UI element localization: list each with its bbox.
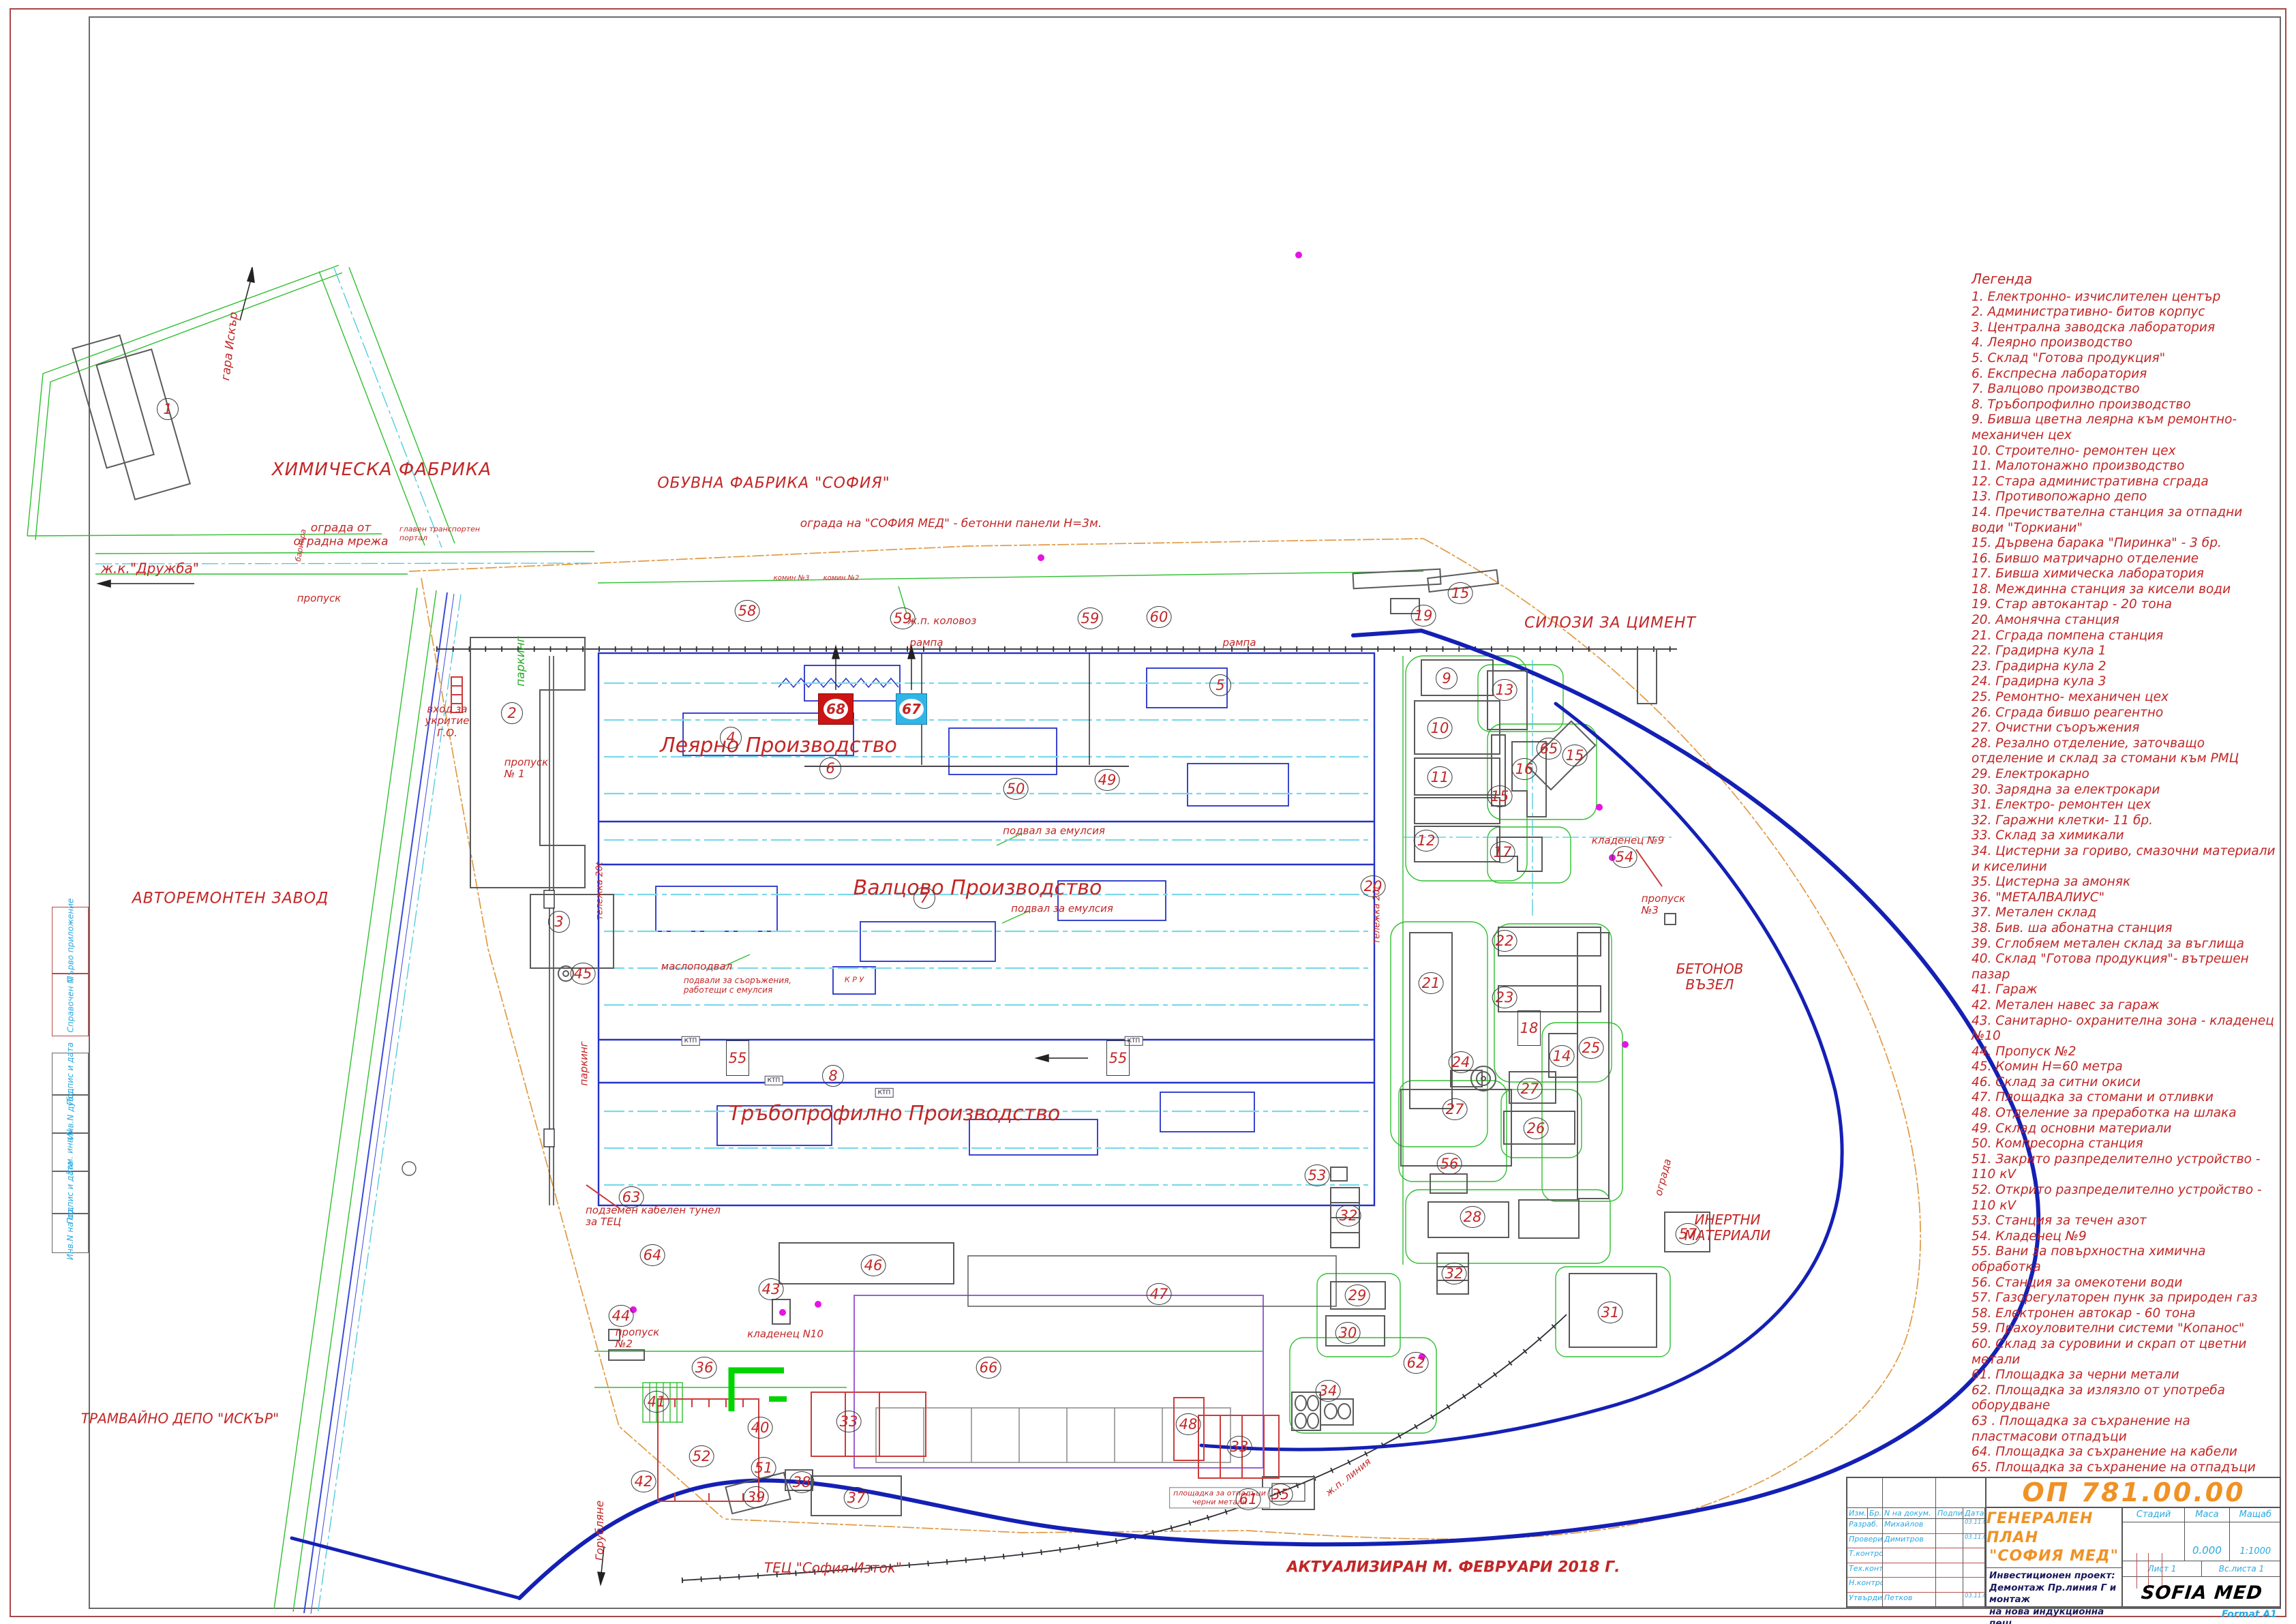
legend-item: 63 . Площадка за съхранение на пластмасо… bbox=[1972, 1414, 2276, 1445]
plan-marker-50: 50 bbox=[1003, 778, 1029, 800]
legend-item: 65. Площадка за съхранение на отпадъци bbox=[1972, 1460, 2276, 1476]
stamp-header-cell: Подпис bbox=[1936, 1508, 1963, 1519]
plan-marker-27: 27 bbox=[1517, 1078, 1543, 1100]
plan-marker-36: 36 bbox=[692, 1357, 717, 1379]
plan-label: ж.п. линия bbox=[1324, 1456, 1374, 1499]
legend-item: 42. Метален навес за гараж bbox=[1972, 998, 2276, 1014]
plan-label: паркинг bbox=[578, 1041, 590, 1085]
legend-item: 16. Бившо матричарно отделение bbox=[1972, 552, 2276, 567]
plan-label: подземен кабелен тунел за ТЕЦ bbox=[586, 1205, 721, 1229]
stamp-cell: Т.контрол bbox=[1847, 1548, 1883, 1563]
legend-item: 7. Валцово производство bbox=[1972, 382, 2276, 397]
legend-item: 60. Склад за суровини и скрап от цветни … bbox=[1972, 1337, 2276, 1368]
plan-marker-62: 62 bbox=[1404, 1352, 1429, 1374]
plan-label: КТП bbox=[875, 1088, 894, 1098]
plan-marker-28: 28 bbox=[1460, 1206, 1485, 1228]
legend-items: 1. Електронно- изчислителен център2. Адм… bbox=[1972, 290, 2276, 1599]
legend-item: 15. Дървена барака "Пиринка" - 3 бр. bbox=[1972, 536, 2276, 552]
legend-item: 57. Газорегулаторен пунк за природен газ bbox=[1972, 1291, 2276, 1306]
plan-marker-10: 10 bbox=[1428, 717, 1453, 739]
plan-marker-13: 13 bbox=[1492, 679, 1517, 701]
plan-marker-35: 35 bbox=[1268, 1484, 1293, 1505]
plan-marker-46: 46 bbox=[861, 1254, 886, 1276]
legend-item: 28. Резално отделение, заточващо отделен… bbox=[1972, 736, 2276, 767]
plan-marker-23: 23 bbox=[1492, 987, 1517, 1008]
stamp-header-cell: Дата bbox=[1963, 1508, 1985, 1519]
legend-item: 27. Очистни съоръжения bbox=[1972, 721, 2276, 736]
plan-marker-59: 59 bbox=[890, 607, 916, 629]
plan-marker-38: 38 bbox=[789, 1471, 815, 1493]
plan-label: ТРАМВАЙНО ДЕПО "ИСКЪР" bbox=[81, 1411, 279, 1427]
legend-item: 1. Електронно- изчислителен център bbox=[1972, 290, 2276, 305]
plan-label: подвал за емулсия bbox=[1011, 903, 1113, 914]
legend-item: 2. Административно- битов корпус bbox=[1972, 305, 2276, 320]
plan-marker-60: 60 bbox=[1147, 606, 1172, 628]
plan-marker-19: 19 bbox=[1411, 605, 1436, 627]
legend-item: 64. Площадка за съхранение на кабели bbox=[1972, 1445, 2276, 1460]
plan-marker-8: 8 bbox=[822, 1065, 844, 1087]
plan-marker-16: 16 bbox=[1512, 758, 1537, 780]
legend-item: 46. Склад за ситни окиси bbox=[1972, 1075, 2276, 1091]
plan-marker-17: 17 bbox=[1490, 841, 1515, 863]
plan-label: вход за укритие Г.О. bbox=[425, 704, 470, 739]
plan-label: Леярно Производство bbox=[660, 734, 897, 758]
plan-marker-68: 68 bbox=[818, 693, 854, 725]
plan-label: Тръбопрофилно Производство bbox=[729, 1102, 1060, 1126]
plan-marker-27: 27 bbox=[1442, 1098, 1468, 1120]
plan-label: пропуск №2 bbox=[616, 1327, 660, 1351]
legend-item: 48. Отделение за преработка на шлака bbox=[1972, 1106, 2276, 1122]
plan-marker-47: 47 bbox=[1147, 1283, 1172, 1305]
format-label: Format A1 bbox=[2188, 1609, 2277, 1620]
plan-label: кладенец №9 bbox=[1592, 834, 1665, 846]
legend-item: 13. Противопожарно депо bbox=[1972, 490, 2276, 505]
plan-marker-66: 66 bbox=[976, 1357, 1001, 1379]
legend-item: 40. Склад "Готова продукция"- вътрешен п… bbox=[1972, 952, 2276, 982]
legend-item: 51. Закрито разпределително устройство -… bbox=[1972, 1152, 2276, 1183]
plan-marker-26: 26 bbox=[1524, 1117, 1549, 1139]
legend-item: 54. Кладенец №9 bbox=[1972, 1229, 2276, 1245]
plan-marker-37: 37 bbox=[844, 1487, 869, 1509]
plan-marker-3: 3 bbox=[548, 911, 570, 933]
sheets-total: Вс.листа 1 bbox=[2202, 1561, 2281, 1576]
frame-sidebar-label: Първо приложение bbox=[52, 907, 89, 974]
plan-label: комин №2 bbox=[824, 574, 860, 582]
legend-item: 37. Метален склад bbox=[1972, 905, 2276, 921]
stamp-cell: Петков bbox=[1883, 1593, 1936, 1608]
plan-marker-7: 7 bbox=[913, 887, 935, 909]
project-description: Инвестиционен проект: Демонтаж Пр.линия … bbox=[1985, 1568, 2121, 1608]
plan-marker-2: 2 bbox=[501, 702, 523, 724]
stamp-header-cell: N на докум. bbox=[1883, 1508, 1936, 1519]
plan-marker-44: 44 bbox=[609, 1305, 634, 1327]
stamp-cell: Проверил bbox=[1847, 1534, 1883, 1549]
plan-marker-34: 34 bbox=[1316, 1380, 1341, 1402]
stamp-cell bbox=[1936, 1563, 1963, 1578]
project-line2: Демонтаж Пр.линия Г и монтаж bbox=[1989, 1582, 2119, 1606]
plan-label: рампа bbox=[909, 637, 943, 648]
legend-item: 6. Експресна лаборатория bbox=[1972, 367, 2276, 382]
legend-item: 34. Цистерни за гориво, смазочни материа… bbox=[1972, 844, 2276, 875]
plan-label: КТП bbox=[682, 1036, 700, 1046]
drawing-title: ГЕНЕРАЛЕН ПЛАН "СОФИЯ МЕД" bbox=[1985, 1508, 2121, 1568]
legend-item: 62. Площадка за излязло от употреба обор… bbox=[1972, 1383, 2276, 1414]
stamp-cell: 03.11.04 bbox=[1963, 1519, 1985, 1534]
plan-label: БЕТОНОВ ВЪЗЕЛ bbox=[1676, 961, 1744, 993]
legend-item: 12. Стара административна сграда bbox=[1972, 475, 2276, 490]
legend-item: 53. Станция за течен азот bbox=[1972, 1214, 2276, 1229]
legend-item: 45. Комин Н=60 метра bbox=[1972, 1059, 2276, 1075]
legend-item: 19. Стар автокантар - 20 тона bbox=[1972, 597, 2276, 613]
stamp-cell bbox=[1883, 1548, 1936, 1563]
plan-label: ТЕЦ "София-Изток" bbox=[764, 1561, 902, 1576]
stadia-label: Стадий bbox=[2123, 1508, 2185, 1522]
drawing-sheet: 1234567891011121314151515161718192021222… bbox=[0, 0, 2296, 1624]
legend-item: 36. "МЕТАЛВАЛИУС" bbox=[1972, 890, 2276, 906]
title-block: ОП 781.00.00 Изм.Бр.N на докум.ПодписДат… bbox=[1846, 1477, 2281, 1608]
legend-item: 43. Санитарно- охранителна зона - кладен… bbox=[1972, 1014, 2276, 1044]
stamp-cell bbox=[1963, 1563, 1985, 1578]
plan-label: подвали за съоръжения, работещи с емулси… bbox=[684, 976, 791, 995]
legend-item: 25. Ремонтно- механичен цех bbox=[1972, 690, 2276, 706]
plan-marker-32: 32 bbox=[1442, 1263, 1467, 1284]
plan-marker-43: 43 bbox=[759, 1278, 784, 1300]
legend-item: 22. Градирна кула 1 bbox=[1972, 644, 2276, 659]
stamp-cell: Димитров bbox=[1883, 1534, 1936, 1549]
plan-marker-29: 29 bbox=[1345, 1284, 1370, 1306]
plan-marker-30: 30 bbox=[1335, 1322, 1361, 1344]
stamp-cell bbox=[1936, 1548, 1963, 1563]
legend-item: 20. Амонячна станция bbox=[1972, 613, 2276, 629]
plan-marker-41: 41 bbox=[644, 1391, 669, 1413]
legend-item: 9. Бивша цветна леярна към ремонтно- мех… bbox=[1972, 412, 2276, 443]
plan-marker-42: 42 bbox=[631, 1471, 656, 1492]
plan-marker-15: 15 bbox=[1562, 745, 1588, 766]
plan-marker-45: 45 bbox=[571, 963, 596, 984]
plan-marker-63: 63 bbox=[619, 1186, 644, 1208]
stamp-cell: Разраб. bbox=[1847, 1519, 1883, 1534]
legend-item: 11. Малотонажно производство bbox=[1972, 459, 2276, 475]
plan-marker-4: 4 bbox=[720, 727, 742, 749]
plan-label: пропуск №3 bbox=[1642, 893, 1686, 917]
plan-label: маслоподвал bbox=[661, 961, 733, 972]
plan-marker-1: 1 bbox=[157, 398, 179, 420]
legend-item: 8. Тръбопрофилно производство bbox=[1972, 397, 2276, 413]
document-number: ОП 781.00.00 bbox=[1985, 1478, 2281, 1508]
plan-label: гара Искър bbox=[220, 312, 241, 382]
legend-item: 50. Компресорна станция bbox=[1972, 1137, 2276, 1152]
plan-label: подвал за емулсия bbox=[1003, 825, 1105, 837]
stamp-cell bbox=[1936, 1534, 1963, 1549]
plan-marker-49: 49 bbox=[1095, 769, 1120, 791]
frame-sidebar-label: Инв.N на ор. bbox=[52, 1214, 89, 1253]
stamp-cell: Н.контрол bbox=[1847, 1578, 1883, 1593]
plan-label: ж.п. коловоз bbox=[908, 615, 977, 627]
sheet-number: Лист 1 bbox=[2123, 1561, 2202, 1576]
plan-label: пропуск № 1 bbox=[504, 757, 549, 781]
plan-marker-65: 65 bbox=[1537, 738, 1562, 760]
legend-item: 23. Градирна кула 2 bbox=[1972, 659, 2276, 675]
plan-label: главен транспортен портал bbox=[399, 525, 480, 542]
plan-marker-61: 61 bbox=[1236, 1488, 1261, 1510]
project-line3: на нова индукционна пещ bbox=[1989, 1606, 2119, 1624]
massa-value: 0.000 bbox=[2185, 1522, 2229, 1561]
legend-item: 32. Гаражни клетки- 11 бр. bbox=[1972, 813, 2276, 829]
plan-marker-67: 67 bbox=[896, 693, 927, 725]
massa-label: Маса bbox=[2185, 1508, 2229, 1522]
plan-label: паркинг bbox=[515, 636, 528, 687]
plan-label: АВТОРЕМОНТЕН ЗАВОД bbox=[132, 890, 329, 907]
stamp-cell bbox=[1936, 1519, 1963, 1534]
plan-marker-21: 21 bbox=[1419, 972, 1444, 994]
stamp-cell: Тех.контрол bbox=[1847, 1563, 1883, 1578]
project-line1: Инвестиционен проект: bbox=[1989, 1570, 2119, 1582]
plan-marker-15: 15 bbox=[1487, 785, 1513, 807]
frame-sidebar-label: Справочен N bbox=[52, 974, 89, 1036]
plan-marker-54: 54 bbox=[1612, 846, 1637, 868]
plan-marker-59: 59 bbox=[1078, 607, 1103, 629]
plan-label: СИЛОЗИ ЗА ЦИМЕНТ bbox=[1524, 614, 1696, 631]
plan-label: КТП bbox=[765, 1076, 783, 1085]
frame-sidebar-label: Инв.N дубл. bbox=[52, 1095, 89, 1133]
plan-label: тележка 20t bbox=[596, 862, 606, 920]
plan-label: пропуск bbox=[297, 592, 342, 604]
plan-marker-39: 39 bbox=[744, 1486, 769, 1508]
marker-number: 67 bbox=[899, 699, 924, 719]
stamp-header-cell: Изм. bbox=[1847, 1508, 1868, 1519]
legend-item: 18. Междинна станция за кисели води bbox=[1972, 582, 2276, 598]
stamp-cell bbox=[1883, 1563, 1936, 1578]
plan-marker-25: 25 bbox=[1579, 1037, 1604, 1059]
frame-sidebar: Първо приложениеСправочен NПодпис и дата… bbox=[52, 0, 89, 1624]
legend-item: 52. Открито разпределително устройство -… bbox=[1972, 1183, 2276, 1214]
stamp-cell bbox=[1936, 1593, 1963, 1608]
plan-marker-31: 31 bbox=[1598, 1302, 1623, 1323]
plan-marker-56: 56 bbox=[1437, 1153, 1462, 1175]
plan-label: комин №3 bbox=[774, 574, 810, 582]
plan-marker-48: 48 bbox=[1176, 1413, 1201, 1435]
legend-item: 49. Склад основни материали bbox=[1972, 1122, 2276, 1137]
drawing-title-line1: ГЕНЕРАЛЕН ПЛАН bbox=[1987, 1509, 2121, 1547]
legend-item: 17. Бивша химическа лаборатория bbox=[1972, 567, 2276, 582]
stamp-cell bbox=[1963, 1548, 1985, 1563]
stamp-header-cell: Бр. bbox=[1868, 1508, 1883, 1519]
stamp-cell bbox=[1883, 1578, 1936, 1593]
plan-marker-14: 14 bbox=[1550, 1045, 1575, 1067]
plan-marker-64: 64 bbox=[640, 1244, 665, 1266]
legend-item: 3. Централна заводска лаборатория bbox=[1972, 320, 2276, 336]
plan-label: ограда от оградна мрежа bbox=[293, 522, 388, 548]
legend-title: Легенда bbox=[1972, 271, 2276, 287]
plan-marker-40: 40 bbox=[748, 1417, 773, 1439]
legend-item: 41. Гараж bbox=[1972, 982, 2276, 998]
plan-label: кладенец N10 bbox=[747, 1328, 824, 1340]
stamp-cell bbox=[1963, 1578, 1985, 1593]
legend-item: 29. Електрокарно bbox=[1972, 767, 2276, 783]
company-logo: SOFIA MED bbox=[2121, 1577, 2283, 1608]
legend-item: 35. Цистерна за амоняк bbox=[1972, 875, 2276, 890]
signature-table: Изм.Бр.N на докум.ПодписДатаРазраб.Михай… bbox=[1847, 1508, 1985, 1608]
plan-marker-20: 20 bbox=[1361, 875, 1386, 897]
legend-item: 39. Сглобяем метален склад за въглища bbox=[1972, 937, 2276, 952]
legend-item: 33. Склад за химикали bbox=[1972, 828, 2276, 844]
plan-label: рампа bbox=[1222, 637, 1256, 648]
stamp-cell: 03.11.04 bbox=[1963, 1534, 1985, 1549]
plan-marker-32: 32 bbox=[1336, 1205, 1361, 1227]
legend-item: 14. Пречиствателна станция за отпадни во… bbox=[1972, 505, 2276, 536]
plan-marker-33: 33 bbox=[1227, 1436, 1252, 1458]
legend-item: 10. Строително- ремонтен цех bbox=[1972, 444, 2276, 460]
plan-marker-9: 9 bbox=[1436, 667, 1457, 689]
mashtab-value: 1:1000 bbox=[2230, 1522, 2281, 1561]
plan-marker-55: 55 bbox=[1106, 1040, 1130, 1076]
legend-item: 44. Пропуск №2 bbox=[1972, 1044, 2276, 1060]
legend-item: 31. Електро- ремонтен цех bbox=[1972, 798, 2276, 813]
plan-marker-5: 5 bbox=[1209, 674, 1231, 696]
legend-item: 24. Градирна кула 3 bbox=[1972, 674, 2276, 690]
legend-panel: Легенда 1. Електронно- изчислителен цент… bbox=[1972, 271, 2276, 1599]
stamp-cell: Михайлов bbox=[1883, 1519, 1936, 1534]
legend-item: 55. Вани за повърхностна химична обработ… bbox=[1972, 1244, 2276, 1275]
legend-item: 26. Сграда бившо реагентно bbox=[1972, 706, 2276, 721]
stamp-cell bbox=[1936, 1578, 1963, 1593]
stamp-cell: 03.11.04 bbox=[1963, 1593, 1985, 1608]
plan-marker-18: 18 bbox=[1517, 1010, 1541, 1046]
legend-item: 56. Станция за омекотени води bbox=[1972, 1276, 2276, 1291]
plan-label: ж.к."Дружба" bbox=[101, 561, 199, 577]
plan-marker-57: 57 bbox=[1676, 1223, 1701, 1245]
plan-marker-6: 6 bbox=[819, 757, 841, 779]
plan-marker-15: 15 bbox=[1448, 582, 1473, 604]
title-block-spare-cells bbox=[1847, 1478, 1985, 1508]
plan-label: Горубляне bbox=[594, 1501, 606, 1561]
legend-item: 61. Площадка за черни метали bbox=[1972, 1368, 2276, 1383]
stamp-right-grid: Стадий Маса Мащаб 0.000 1:1000 Лист 1 Вс… bbox=[2121, 1508, 2281, 1608]
drawing-title-line2: "СОФИЯ МЕД" bbox=[1989, 1547, 2119, 1566]
plan-label: ХИМИЧЕСКА ФАБРИКА bbox=[272, 460, 492, 481]
plan-marker-33: 33 bbox=[836, 1411, 862, 1432]
legend-item: 21. Сграда помпена станция bbox=[1972, 629, 2276, 644]
legend-item: 59. Прахоуловителни системи "Копанос" bbox=[1972, 1321, 2276, 1337]
plan-marker-11: 11 bbox=[1428, 766, 1453, 788]
plan-marker-22: 22 bbox=[1492, 930, 1517, 952]
legend-item: 4. Леярно производство bbox=[1972, 335, 2276, 351]
plan-label: АКТУАЛИЗИРАН М. ФЕВРУАРИ 2018 Г. bbox=[1286, 1559, 1620, 1576]
legend-item: 38. Бив. ша абонатна станция bbox=[1972, 921, 2276, 937]
plan-marker-53: 53 bbox=[1305, 1164, 1330, 1186]
plan-annotations: 1234567891011121314151515161718192021222… bbox=[0, 0, 2296, 1624]
plan-marker-24: 24 bbox=[1449, 1051, 1474, 1073]
plan-marker-52: 52 bbox=[689, 1445, 714, 1467]
plan-label: Валцово Производство bbox=[854, 877, 1102, 901]
plan-label: ограда на "СОФИЯ МЕД" - бетонни панели Н… bbox=[800, 517, 1102, 531]
plan-label: К Р У bbox=[845, 976, 864, 985]
legend-item: 5. Склад "Готова продукция" bbox=[1972, 351, 2276, 367]
stamp-cell: Утвърдил bbox=[1847, 1593, 1883, 1608]
plan-label: ОБУВНА ФАБРИКА "СОФИЯ" bbox=[657, 475, 890, 492]
legend-item: 30. Зарядна за електрокари bbox=[1972, 783, 2276, 798]
plan-label: ограда bbox=[1653, 1158, 1674, 1197]
legend-item: 47. Площадка за стомани и отливки bbox=[1972, 1090, 2276, 1106]
legend-item: 58. Електронен автокар - 60 тона bbox=[1972, 1306, 2276, 1322]
plan-marker-58: 58 bbox=[735, 600, 760, 622]
plan-marker-55: 55 bbox=[726, 1040, 749, 1076]
mashtab-label: Мащаб bbox=[2230, 1508, 2281, 1522]
plan-marker-51: 51 bbox=[751, 1457, 776, 1479]
plan-marker-12: 12 bbox=[1414, 830, 1439, 852]
marker-number: 68 bbox=[824, 699, 848, 719]
